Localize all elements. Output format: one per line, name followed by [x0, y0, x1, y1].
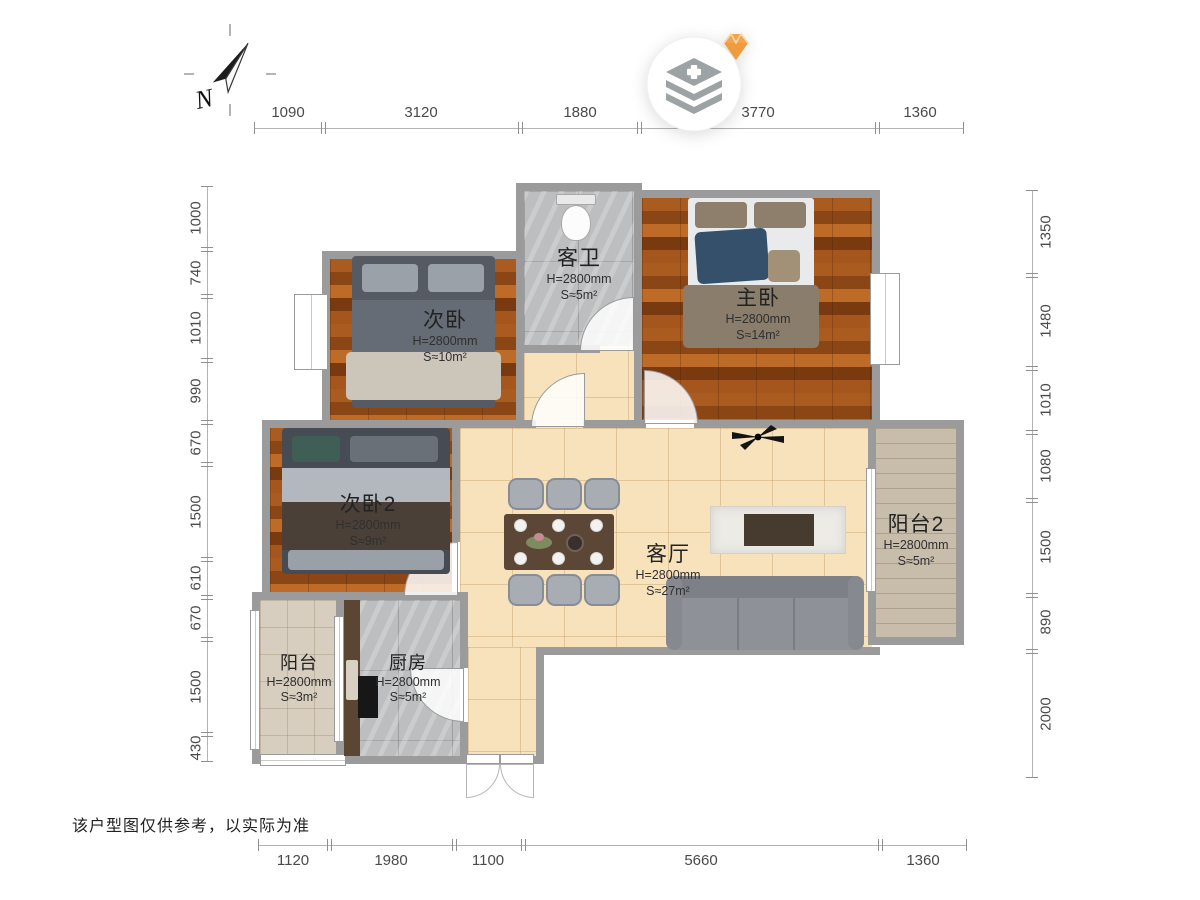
dim-tick	[518, 122, 523, 134]
wall	[460, 592, 468, 668]
wall	[634, 190, 880, 198]
room-label-master: 主卧 H=2800mm S≈14m²	[726, 286, 791, 344]
wall	[262, 420, 536, 428]
sofa-seam	[737, 598, 739, 650]
dim-tick	[1026, 777, 1038, 778]
room-area: S≈9m²	[336, 534, 401, 550]
dim-label: 670	[188, 430, 205, 455]
dim-label: 1080	[1038, 449, 1055, 482]
dim-tick	[878, 839, 883, 851]
pillow	[350, 436, 438, 462]
room-ceiling: H=2800mm	[376, 675, 441, 691]
room-ceiling: H=2800mm	[413, 334, 478, 350]
plate	[590, 519, 603, 532]
window	[870, 273, 900, 365]
ceiling-fan-icon	[731, 424, 785, 452]
dim-label: 1880	[563, 104, 596, 121]
room-ceiling: H=2800mm	[547, 272, 612, 288]
dim-tick	[1026, 190, 1038, 191]
dim-label: 1010	[1038, 383, 1055, 416]
dim-tick	[321, 122, 326, 134]
dim-label: 1120	[277, 852, 309, 869]
dim-tick	[201, 462, 213, 467]
wall	[868, 420, 964, 428]
wall	[516, 183, 642, 191]
room-ceiling: H=2800mm	[336, 518, 401, 534]
entrance-door-arc	[466, 764, 500, 798]
wall	[452, 420, 460, 542]
room-ceiling: H=2800mm	[884, 538, 949, 554]
sofa-seam	[793, 598, 795, 650]
dim-tick	[201, 358, 213, 363]
dim-tick	[201, 186, 213, 187]
room-label-bedroom3: 次卧2 H=2800mm S≈9m²	[336, 492, 401, 550]
sofa-armrest	[848, 576, 864, 650]
toilet-bowl	[561, 205, 591, 241]
fruit-bowl	[566, 534, 584, 552]
pillow	[695, 202, 747, 228]
pillow	[292, 436, 340, 462]
dim-label: 1500	[188, 495, 205, 528]
dim-tick	[1026, 430, 1038, 435]
dim-tick	[327, 839, 332, 851]
dim-label: 1980	[374, 852, 407, 869]
dim-label: 1010	[188, 311, 205, 344]
dim-label: 1000	[188, 201, 205, 234]
room-area: S≈10m²	[413, 350, 478, 366]
room-area: S≈5m²	[376, 690, 441, 706]
dim-label: 1090	[271, 104, 304, 121]
bed-foot	[288, 550, 444, 570]
flowers-pink	[534, 533, 544, 541]
dim-label: 1500	[1038, 530, 1055, 563]
pillow	[754, 202, 806, 228]
plate	[590, 552, 603, 565]
dim-label: 430	[188, 735, 205, 760]
room-label-kitchen: 厨房 H=2800mm S≈5m²	[376, 652, 441, 706]
room-area: S≈5m²	[547, 288, 612, 304]
dim-line-bottom	[258, 845, 966, 846]
dim-label: 2000	[1038, 697, 1055, 730]
clothes	[694, 228, 769, 285]
room-name: 阳台2	[884, 512, 949, 538]
tv	[744, 514, 814, 546]
dim-tick	[254, 122, 255, 134]
plate	[552, 519, 565, 532]
chair	[584, 478, 620, 510]
chair	[508, 574, 544, 606]
dim-tick	[521, 839, 526, 851]
dim-label: 740	[188, 260, 205, 285]
wall	[516, 253, 524, 428]
room-name: 主卧	[726, 286, 791, 312]
wall	[262, 420, 270, 600]
dim-line-top	[254, 128, 963, 129]
room-name: 客卫	[547, 246, 612, 272]
dim-line-right	[1032, 190, 1033, 777]
dim-tick	[1026, 498, 1038, 503]
room-area: S≈5m²	[884, 554, 949, 570]
dim-label: 990	[188, 378, 205, 403]
compass-n-glyph: N	[192, 83, 218, 116]
dim-tick	[963, 122, 964, 134]
entrance-door-arc	[500, 764, 534, 798]
pillow-small	[768, 250, 800, 282]
dim-label: 890	[1038, 609, 1055, 634]
room-ceiling: H=2800mm	[267, 675, 332, 691]
room-label-bedroom2: 次卧 H=2800mm S≈10m²	[413, 308, 478, 366]
window	[866, 468, 876, 592]
chair	[546, 574, 582, 606]
dim-label: 1360	[906, 852, 939, 869]
dim-label: 5660	[684, 852, 717, 869]
dim-label: 1350	[1038, 215, 1055, 248]
kitchen-sink	[346, 660, 358, 700]
dim-label: 670	[188, 605, 205, 630]
room-name: 厨房	[376, 652, 441, 675]
compass-north-icon: N	[182, 22, 278, 118]
dim-label: 3120	[404, 104, 437, 121]
entry-hall-floor	[468, 647, 536, 756]
room-area: S≈3m²	[267, 690, 332, 706]
wall	[694, 420, 880, 428]
dim-tick	[966, 839, 967, 851]
dim-tick	[201, 420, 213, 425]
dim-label: 1500	[188, 670, 205, 703]
dim-tick	[258, 839, 259, 851]
room-label-bathroom: 客卫 H=2800mm S≈5m²	[547, 246, 612, 304]
chair	[584, 574, 620, 606]
dim-tick	[1026, 273, 1038, 278]
wall	[868, 637, 964, 645]
window	[260, 754, 346, 766]
room-ceiling: H=2800mm	[726, 312, 791, 328]
wall	[536, 647, 544, 764]
room-area: S≈14m²	[726, 328, 791, 344]
dim-tick	[1026, 593, 1038, 598]
room-name: 次卧	[413, 308, 478, 334]
wall	[956, 420, 964, 645]
design-app-logo-button[interactable]	[638, 26, 754, 142]
dim-tick	[201, 557, 213, 562]
dining-table	[504, 514, 614, 570]
wall	[516, 183, 524, 259]
pillow	[428, 264, 484, 292]
dim-line-left	[207, 186, 208, 761]
room-name: 次卧2	[336, 492, 401, 518]
wall	[583, 420, 646, 428]
room-name: 客厅	[636, 542, 701, 568]
room-name: 阳台	[267, 652, 332, 675]
chair	[546, 478, 582, 510]
wall	[634, 198, 642, 428]
dim-label: 610	[188, 565, 205, 590]
room-label-balcony: 阳台 H=2800mm S≈3m²	[267, 652, 332, 706]
dim-label: 1100	[472, 852, 504, 869]
window	[294, 294, 328, 370]
plate	[514, 552, 527, 565]
pillow	[362, 264, 418, 292]
dim-tick	[452, 839, 457, 851]
entrance-door-leaf	[500, 754, 534, 764]
entrance-door-leaf	[466, 754, 500, 764]
chair	[508, 478, 544, 510]
plate	[552, 552, 565, 565]
dim-tick	[201, 595, 213, 600]
floor-plan-page: N N 1090 3120 1880 3770 1360 1120 1980 1…	[0, 0, 1200, 900]
dim-tick	[201, 637, 213, 642]
room-label-balcony2: 阳台2 H=2800mm S≈5m²	[884, 512, 949, 570]
room-ceiling: H=2800mm	[636, 568, 701, 584]
room-label-living: 客厅 H=2800mm S≈27m²	[636, 542, 701, 600]
window	[334, 616, 344, 742]
dim-tick	[201, 761, 213, 762]
dim-label: 1480	[1038, 304, 1055, 337]
dim-tick	[875, 122, 880, 134]
dim-tick	[1026, 649, 1038, 654]
window	[250, 610, 260, 750]
dim-label: 1360	[903, 104, 936, 121]
room-area: S≈27m²	[636, 584, 701, 600]
dim-tick	[201, 247, 213, 252]
disclaimer-text: 该户型图仅供参考，以实际为准	[72, 812, 310, 836]
plate	[514, 519, 527, 532]
dim-tick	[201, 294, 213, 299]
toilet	[556, 194, 596, 205]
dim-tick	[1026, 366, 1038, 371]
